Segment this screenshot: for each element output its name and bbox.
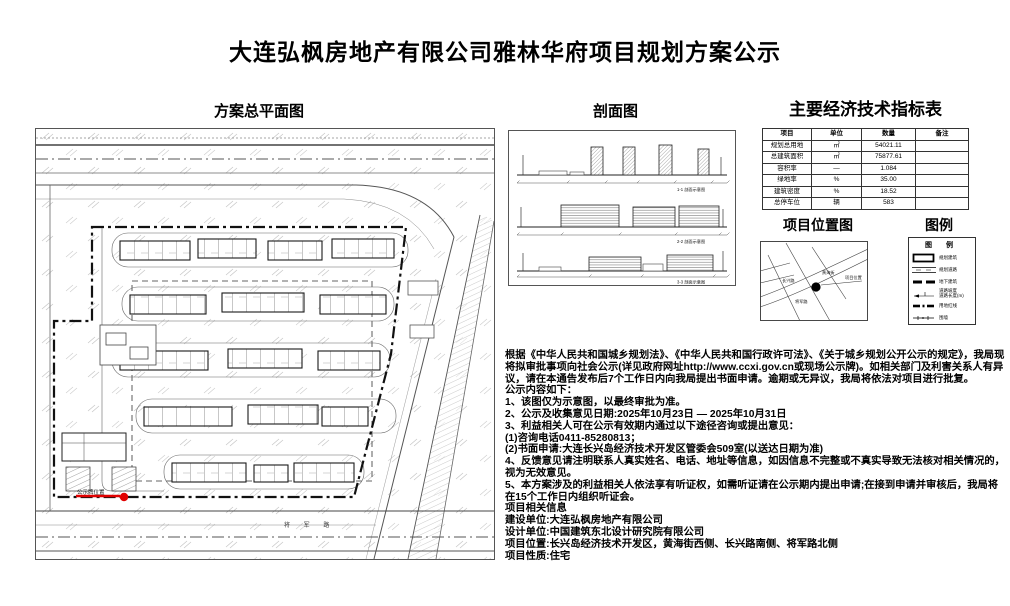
section-3-caption: 3-3 剖面示意图 bbox=[677, 279, 705, 286]
legend-label: 围墙 bbox=[939, 316, 948, 321]
notice-paragraph: 项目位置:长兴岛经济技术开发区，黄海街西侧、长兴路南侧、将军路北侧 bbox=[505, 539, 1008, 551]
cell-unit: % bbox=[812, 175, 862, 187]
location-map-heading: 项目位置图 bbox=[783, 215, 853, 235]
cell-unit: 辆 bbox=[812, 198, 862, 210]
location-map-drawing: 长兴路 黄海街 将军路 项目位置 bbox=[760, 241, 868, 321]
cell-quantity: 1.084 bbox=[862, 163, 916, 175]
cell-unit: ㎡ bbox=[812, 140, 862, 152]
planned-building-symbol bbox=[912, 253, 936, 263]
cell-unit: — bbox=[812, 163, 862, 175]
location-map-svg: 长兴路 黄海街 将军路 项目位置 bbox=[760, 241, 868, 321]
indicators-heading: 主要经济技术指标表 bbox=[789, 95, 942, 120]
table-row: 容积率 — 1.084 bbox=[763, 163, 969, 175]
cell-unit: ㎡ bbox=[812, 152, 862, 164]
cell-item: 总停车位 bbox=[763, 198, 812, 210]
page-title: 大连弘枫房地产有限公司雅林华府项目规划方案公示 bbox=[0, 33, 1010, 67]
notice-paragraph: 设计单位:中国建筑东北设计研究院有限公司 bbox=[505, 527, 1008, 539]
site-plan-svg: 将 军 路 bbox=[36, 129, 494, 559]
site-location-dot bbox=[811, 282, 820, 291]
cell-remark bbox=[916, 140, 969, 152]
cell-unit: % bbox=[812, 186, 862, 198]
underground-building-symbol bbox=[912, 277, 936, 287]
legend-label: 地下建筑 bbox=[939, 280, 957, 285]
cell-remark bbox=[916, 198, 969, 210]
legend-label: 道路坡度 道路长度(m) bbox=[939, 289, 964, 298]
cell-item: 容积率 bbox=[763, 163, 812, 175]
legend-box: 图 例 规划建筑 规划道路 地下建筑 道路坡度 道路长度(m) bbox=[908, 237, 976, 325]
notice-paragraph: 公示内容如下： bbox=[505, 385, 1008, 397]
cell-remark bbox=[916, 186, 969, 198]
map-label-huanghai-street: 黄海街 bbox=[822, 269, 835, 276]
table-row: 总停车位 辆 583 bbox=[763, 198, 969, 210]
notice-paragraph: (1)咨询电话0411-85280813； bbox=[505, 433, 1008, 445]
table-row: 绿地率 % 35.00 bbox=[763, 175, 969, 187]
cell-item: 绿地率 bbox=[763, 175, 812, 187]
cell-remark bbox=[916, 175, 969, 187]
map-label-site-location: 项目位置 bbox=[845, 274, 862, 281]
section-2-caption: 2-2 剖面示意图 bbox=[677, 238, 705, 245]
cell-quantity: 583 bbox=[862, 198, 916, 210]
section-view-heading: 剖面图 bbox=[593, 100, 638, 121]
notice-paragraph: (2)书面申请:大连长兴岛经济技术开发区管委会509室(以送达日期为准) bbox=[505, 444, 1008, 456]
legend-label: 规划建筑 bbox=[939, 256, 957, 261]
cell-item: 规划总用地 bbox=[763, 140, 812, 152]
legend-item: 围墙 bbox=[912, 312, 972, 324]
col-header-quantity: 数量 bbox=[862, 129, 916, 141]
site-redline-symbol bbox=[912, 301, 936, 311]
cell-quantity: 54021.11 bbox=[862, 140, 916, 152]
legend-item: 用地红线 bbox=[912, 300, 972, 312]
legend-item: 道路坡度 道路长度(m) bbox=[912, 288, 972, 300]
site-plan-drawing: 将 军 路 bbox=[35, 128, 495, 560]
legend-title: 图 例 bbox=[912, 240, 972, 250]
notice-paragraph: 3、利益相关人可在公示有效期内通过以下途径咨询或提出意见： bbox=[505, 421, 1008, 433]
notice-paragraph: 根据《中华人民共和国城乡规划法》、《中华人民共和国行政许可法》、《关于城乡规划公… bbox=[505, 350, 1008, 385]
section-3: 3-3 剖面示意图 bbox=[517, 251, 730, 285]
section-view-drawing: 1-1 剖面示意图 2-2 剖面示意图 3-3 剖面示意图 bbox=[508, 130, 736, 286]
table-row: 总建筑面积 ㎡ 75877.61 bbox=[763, 152, 969, 164]
notice-paragraph: 4、反馈意见请注明联系人真实姓名、电话、地址等信息，如因信息不完整或不真实导致无… bbox=[505, 456, 1008, 480]
section-2: 2-2 剖面示意图 bbox=[517, 205, 730, 245]
cell-quantity: 35.00 bbox=[862, 175, 916, 187]
legend-heading: 图例 bbox=[925, 215, 953, 235]
section-1: 1-1 剖面示意图 bbox=[517, 145, 730, 193]
cell-quantity: 75877.61 bbox=[862, 152, 916, 164]
map-label-changxing-road: 长兴路 bbox=[782, 277, 795, 284]
indicators-table: 项目 单位 数量 备注 规划总用地 ㎡ 54021.11 总建筑面积 ㎡ 758… bbox=[762, 128, 969, 210]
col-header-item: 项目 bbox=[763, 129, 812, 141]
south-road-label: 将 军 路 bbox=[284, 521, 335, 529]
table-header-row: 项目 单位 数量 备注 bbox=[763, 129, 969, 141]
marker-label: 公示牌位置 bbox=[77, 488, 105, 496]
section-1-caption: 1-1 剖面示意图 bbox=[677, 186, 705, 193]
notice-text-block: 根据《中华人民共和国城乡规划法》、《中华人民共和国行政许可法》、《关于城乡规划公… bbox=[505, 350, 1008, 562]
table-row: 规划总用地 ㎡ 54021.11 bbox=[763, 140, 969, 152]
notice-paragraph: 5、本方案涉及的利益相关人依法享有听证权，如需听证请在公示期内提出申请;在接到申… bbox=[505, 480, 1008, 504]
legend-item: 规划道路 bbox=[912, 264, 972, 276]
notice-paragraph: 建设单位:大连弘枫房地产有限公司 bbox=[505, 515, 1008, 527]
red-marker-dot bbox=[120, 493, 128, 501]
cell-item: 建筑密度 bbox=[763, 186, 812, 198]
road-slope-symbol bbox=[912, 289, 936, 299]
planned-road-symbol bbox=[912, 265, 936, 275]
table-row: 建筑密度 % 18.52 bbox=[763, 186, 969, 198]
cell-quantity: 18.52 bbox=[862, 186, 916, 198]
notice-paragraph: 项目相关信息 bbox=[505, 503, 1008, 515]
map-label-jiangjun-road: 将军路 bbox=[795, 298, 808, 305]
legend-label: 规划道路 bbox=[939, 268, 957, 273]
legend-item: 地下建筑 bbox=[912, 276, 972, 288]
site-plan-heading: 方案总平面图 bbox=[214, 100, 304, 121]
cell-remark bbox=[916, 163, 969, 175]
northwest-structure bbox=[100, 325, 156, 365]
legend-item: 规划建筑 bbox=[912, 252, 972, 264]
notice-paragraph: 项目性质:住宅 bbox=[505, 551, 1008, 563]
cell-item: 总建筑面积 bbox=[763, 152, 812, 164]
notice-paragraph: 1、该图仅为示意图，以最终审批为准。 bbox=[505, 397, 1008, 409]
section-view-svg: 1-1 剖面示意图 2-2 剖面示意图 3-3 剖面示意图 bbox=[509, 131, 735, 285]
col-header-remark: 备注 bbox=[916, 129, 969, 141]
fence-symbol bbox=[912, 313, 936, 323]
notice-paragraph: 2、公示及收集意见日期:2025年10月23日 — 2025年10月31日 bbox=[505, 409, 1008, 421]
cell-remark bbox=[916, 152, 969, 164]
ancillary-building bbox=[62, 433, 126, 461]
legend-label: 用地红线 bbox=[939, 304, 957, 309]
col-header-unit: 单位 bbox=[812, 129, 862, 141]
